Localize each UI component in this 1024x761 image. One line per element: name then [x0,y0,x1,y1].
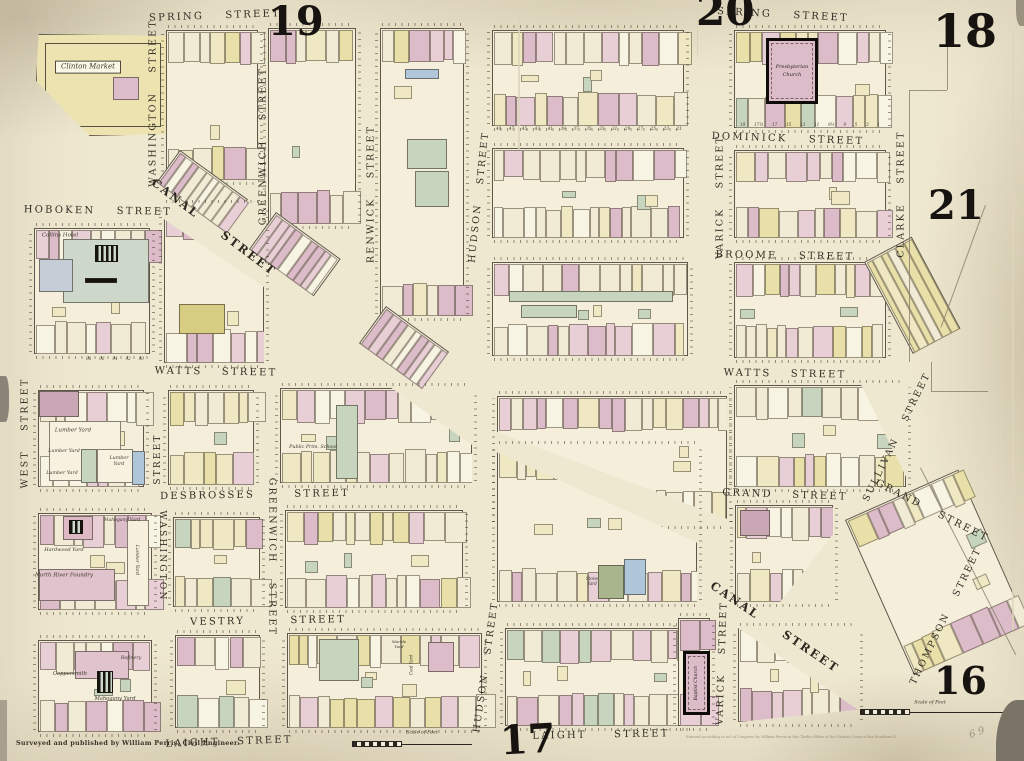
scale-of-feet-label: Scale of Feet [406,731,438,736]
surveyor-credit: Surveyed and published by William Perris… [16,739,240,747]
scale-bars-layer: Scale of FeetScale of Feet [0,0,1024,761]
scale-bar-segments [352,741,402,747]
perris-atlas-map: 4947454341393735333129272523211917½17151… [0,0,1024,761]
scale-of-feet-bar [860,710,1006,714]
copyright-imprint: Entered according to act of Congress by … [686,735,896,739]
scale-of-feet-bar [352,742,472,746]
scale-bar-line [402,744,472,745]
scale-bar-segments [860,709,910,715]
scale-bar-line [910,712,1006,713]
scale-of-feet-label: Scale of Feet [914,701,946,706]
